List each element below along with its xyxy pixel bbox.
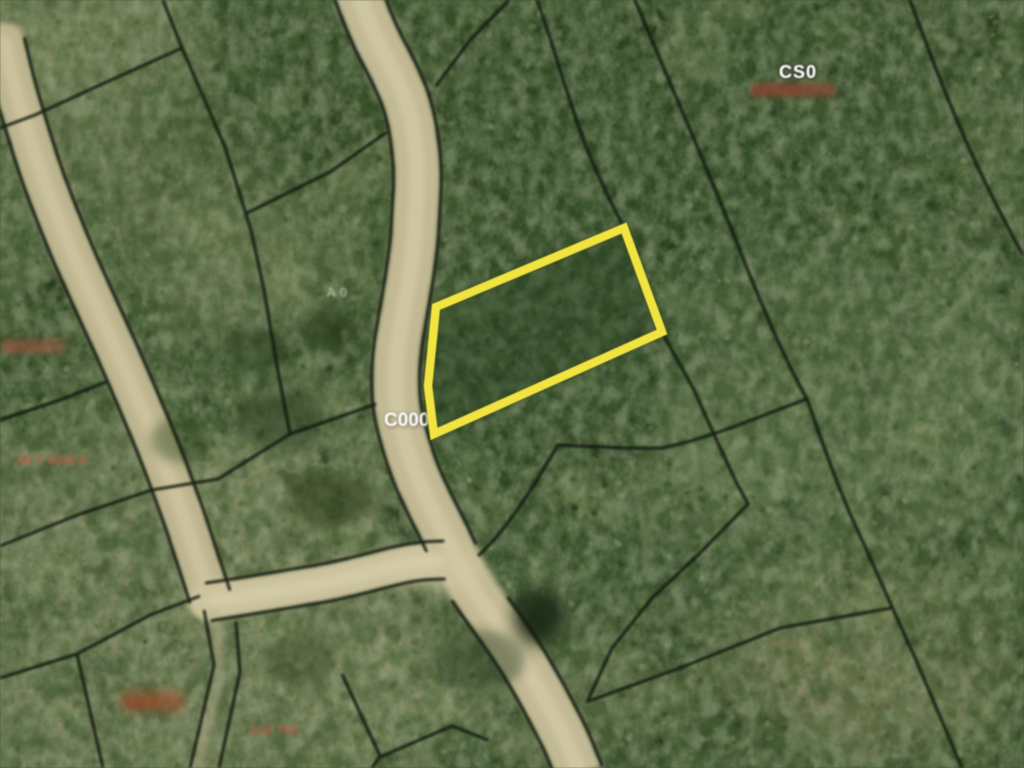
svg-text:02 T 02: 02 T 02 xyxy=(3,341,44,355)
svg-text:6 0 0: 6 0 0 xyxy=(126,695,157,711)
svg-text:L02 T03: L02 T03 xyxy=(250,722,298,737)
svg-text:C000: C000 xyxy=(384,410,429,431)
svg-text:L02 T02 0: L02 T02 0 xyxy=(753,83,812,98)
svg-text:03 T 0203 0: 03 T 0203 0 xyxy=(18,452,87,467)
svg-text:A 0: A 0 xyxy=(326,284,347,300)
svg-text:CS0: CS0 xyxy=(779,62,817,82)
